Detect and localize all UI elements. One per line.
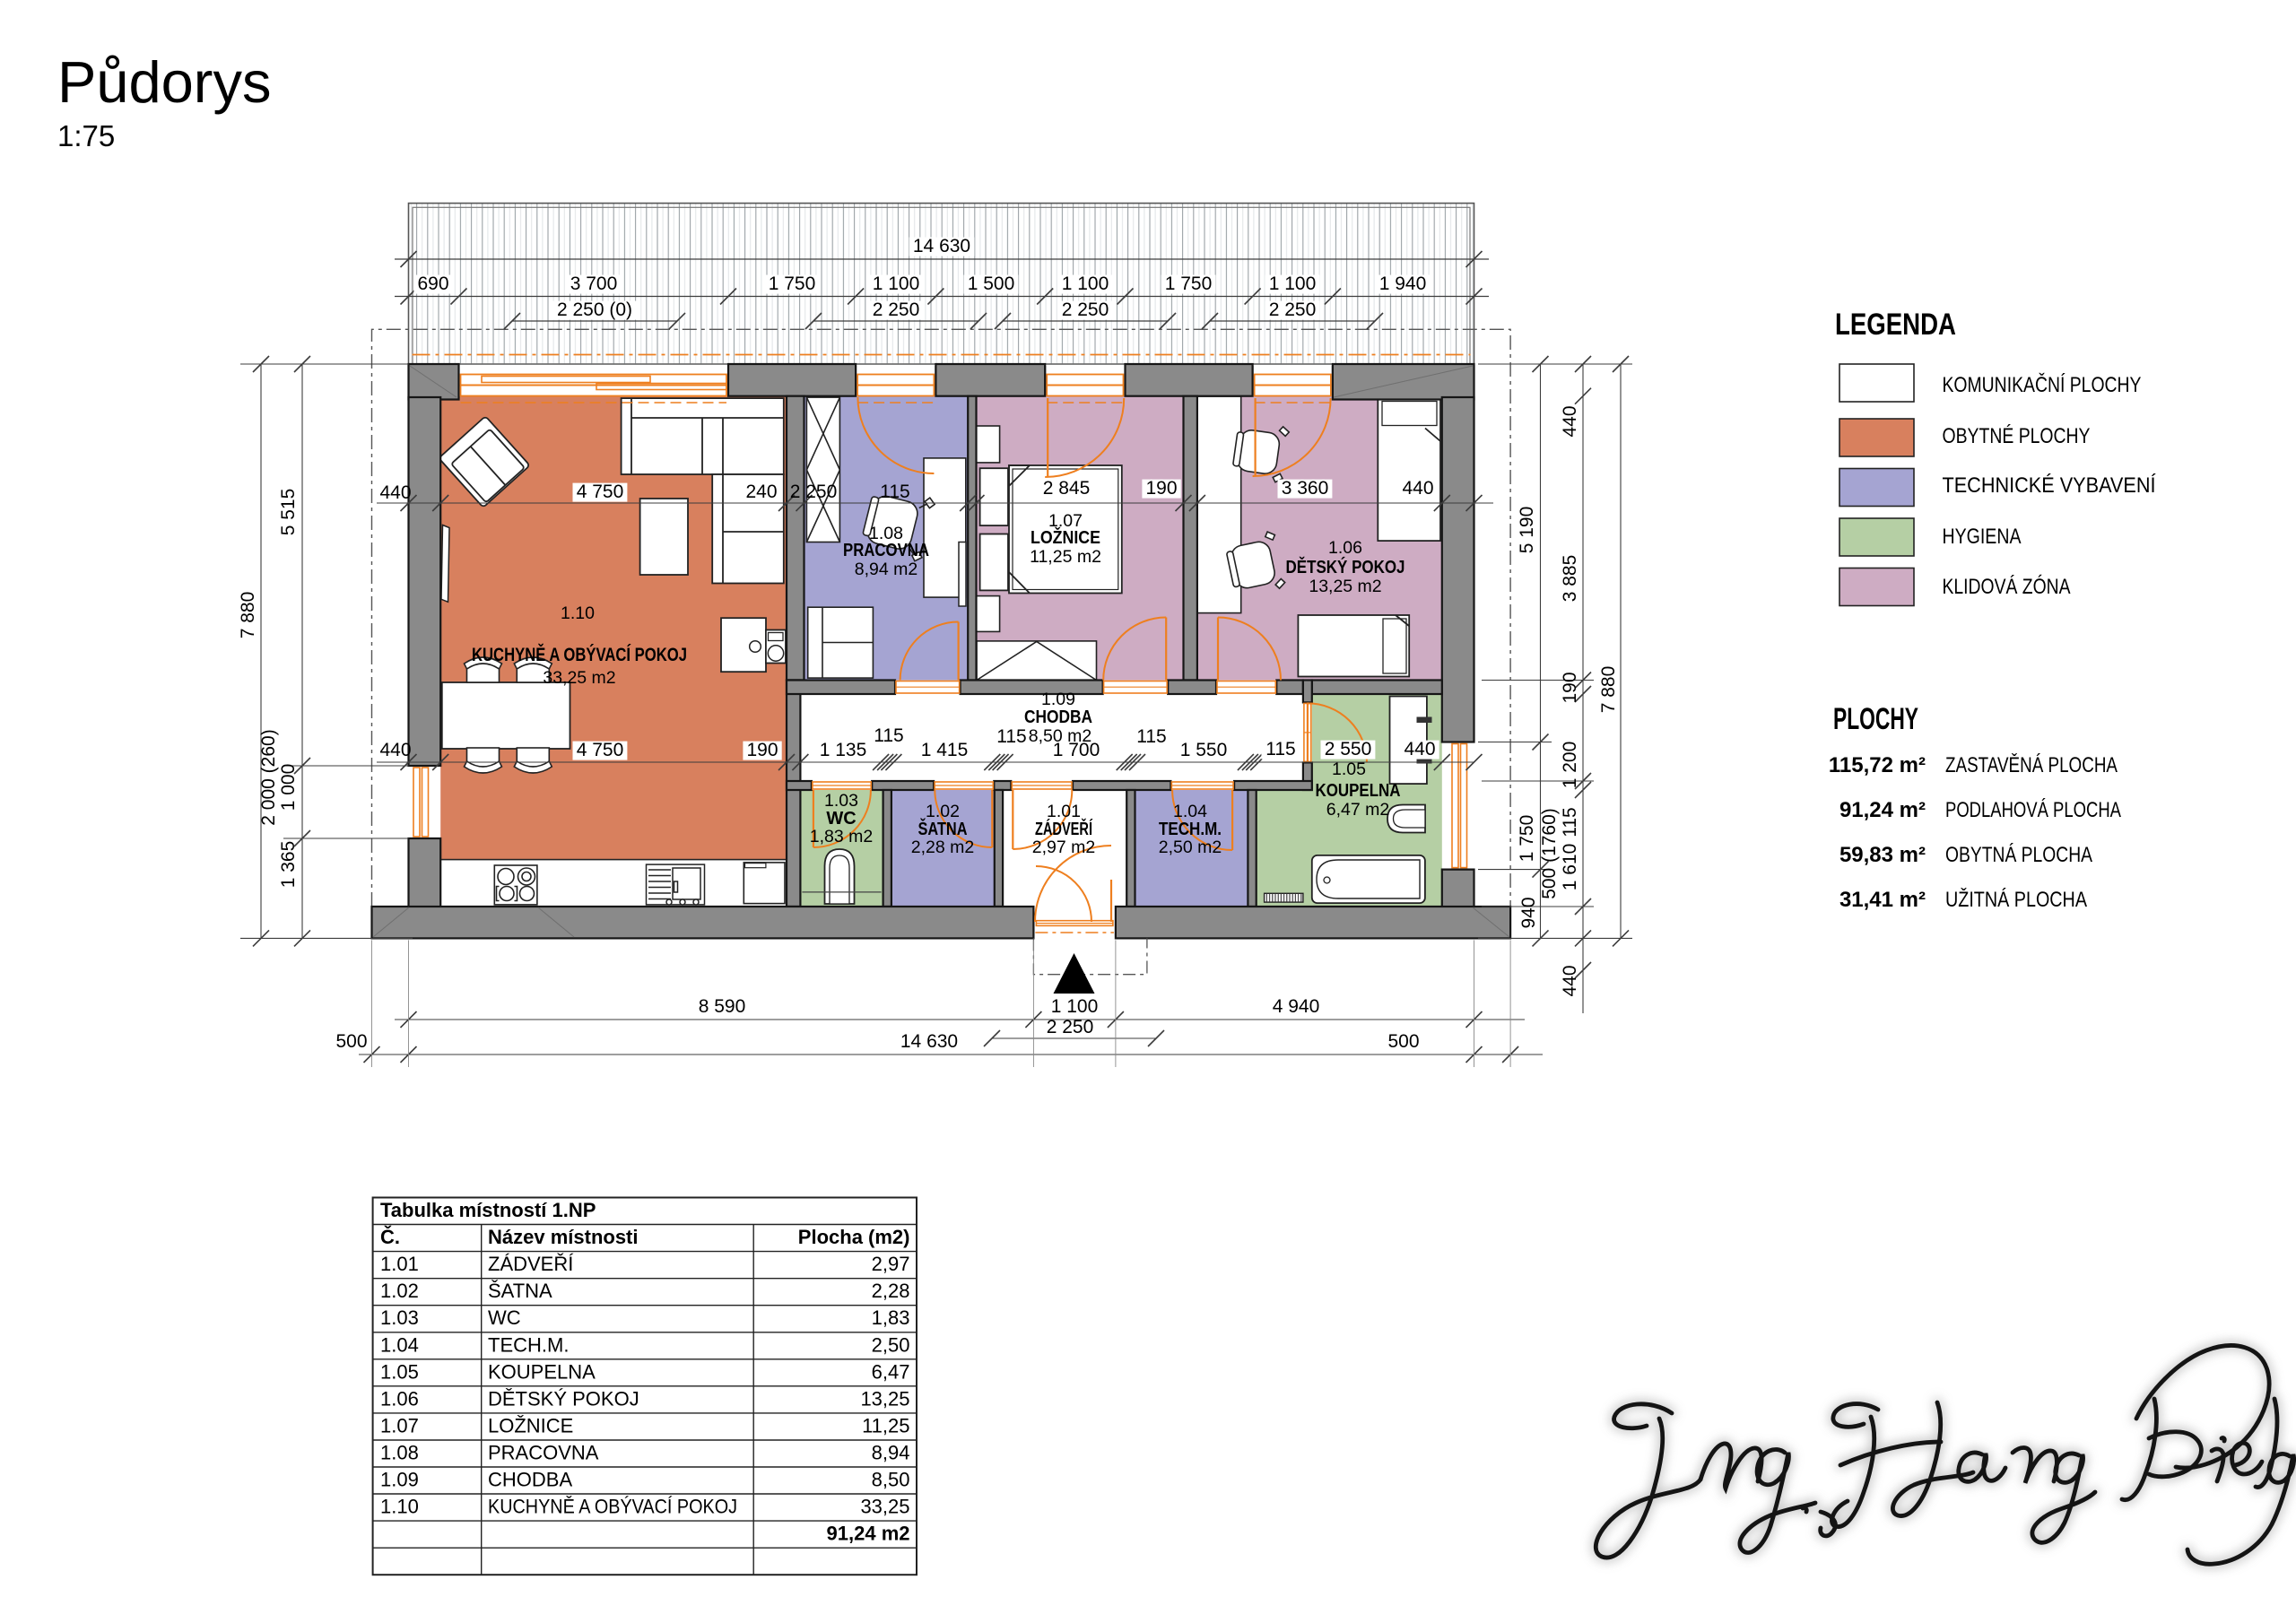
svg-text:14 630: 14 630 xyxy=(913,236,970,256)
svg-text:ZÁDVEŘÍ: ZÁDVEŘÍ xyxy=(488,1253,574,1275)
svg-text:CHODBA: CHODBA xyxy=(1024,707,1092,727)
svg-text:2 550: 2 550 xyxy=(1325,739,1372,759)
svg-text:PODLAHOVÁ PLOCHA: PODLAHOVÁ PLOCHA xyxy=(1945,798,2121,822)
svg-text:KOUPELNA: KOUPELNA xyxy=(488,1360,596,1383)
svg-text:1 000: 1 000 xyxy=(278,764,299,811)
svg-text:Půdorys: Půdorys xyxy=(57,49,271,115)
svg-text:2,97: 2,97 xyxy=(872,1253,910,1275)
svg-text:240: 240 xyxy=(745,482,777,502)
svg-text:LOŽNICE: LOŽNICE xyxy=(488,1415,573,1437)
svg-text:2 250: 2 250 xyxy=(1047,1017,1094,1037)
svg-text:ŠATNA: ŠATNA xyxy=(488,1280,552,1302)
svg-text:Tabulka místností 1.NP: Tabulka místností 1.NP xyxy=(380,1199,596,1221)
svg-text:3 360: 3 360 xyxy=(1282,478,1329,499)
svg-text:TECH.M.: TECH.M. xyxy=(488,1333,569,1356)
svg-text:91,24 m²: 91,24 m² xyxy=(1839,798,1926,822)
svg-text:TECH.M.: TECH.M. xyxy=(1159,820,1222,839)
svg-text:KUCHYNĚ A OBÝVACÍ POKOJ: KUCHYNĚ A OBÝVACÍ POKOJ xyxy=(488,1496,737,1518)
svg-text:115: 115 xyxy=(1265,739,1295,759)
svg-text:DĚTSKÝ POKOJ: DĚTSKÝ POKOJ xyxy=(488,1387,639,1410)
svg-text:KOUPELNA: KOUPELNA xyxy=(1316,781,1401,801)
svg-text:1 415: 1 415 xyxy=(921,740,969,760)
svg-text:8,50: 8,50 xyxy=(872,1469,910,1491)
svg-text:4 750: 4 750 xyxy=(577,482,624,502)
svg-text:1.03: 1.03 xyxy=(380,1306,419,1329)
svg-text:LOŽNICE: LOŽNICE xyxy=(1031,526,1100,548)
svg-text:7 880: 7 880 xyxy=(238,592,258,639)
svg-text:14 630: 14 630 xyxy=(900,1031,958,1052)
svg-text:31,41 m²: 31,41 m² xyxy=(1839,888,1926,912)
svg-text:440: 440 xyxy=(1560,405,1580,437)
svg-text:940: 940 xyxy=(1518,897,1539,928)
svg-text:11,25: 11,25 xyxy=(862,1415,909,1437)
svg-text:3 885: 3 885 xyxy=(1560,555,1580,603)
svg-text:1:75: 1:75 xyxy=(57,119,115,152)
svg-text:1 500: 1 500 xyxy=(968,273,1015,294)
svg-text:1.04: 1.04 xyxy=(380,1333,419,1356)
svg-text:1.09: 1.09 xyxy=(380,1469,419,1491)
svg-text:500: 500 xyxy=(1387,1031,1419,1052)
svg-text:2 250: 2 250 xyxy=(873,299,920,320)
svg-text:Název místnosti: Název místnosti xyxy=(488,1226,639,1248)
svg-text:ŠATNA: ŠATNA xyxy=(918,818,968,839)
svg-text:4 940: 4 940 xyxy=(1273,996,1320,1017)
svg-text:1 100: 1 100 xyxy=(1269,273,1317,294)
svg-text:KLIDOVÁ ZÓNA: KLIDOVÁ ZÓNA xyxy=(1943,575,2071,599)
svg-text:PRACOVNA: PRACOVNA xyxy=(488,1442,599,1464)
svg-text:CHODBA: CHODBA xyxy=(488,1469,572,1491)
svg-text:1 940: 1 940 xyxy=(1379,273,1427,294)
svg-text:690: 690 xyxy=(417,273,448,294)
svg-text:LEGENDA: LEGENDA xyxy=(1835,308,1956,342)
svg-text:190: 190 xyxy=(746,740,778,760)
svg-text:440: 440 xyxy=(379,740,411,760)
svg-text:1.02: 1.02 xyxy=(926,802,960,821)
svg-text:2 000 (260): 2 000 (260) xyxy=(258,729,279,825)
svg-text:115,72 m²: 115,72 m² xyxy=(1829,753,1926,777)
svg-text:WC: WC xyxy=(488,1306,521,1329)
svg-text:1.01: 1.01 xyxy=(380,1253,419,1275)
svg-text:500: 500 xyxy=(335,1031,367,1052)
svg-text:115: 115 xyxy=(1560,807,1580,837)
svg-text:8,50 m2: 8,50 m2 xyxy=(1029,726,1091,746)
svg-text:1.05: 1.05 xyxy=(1332,759,1366,779)
svg-text:2,28 m2: 2,28 m2 xyxy=(911,838,974,857)
svg-text:8 590: 8 590 xyxy=(699,996,746,1017)
svg-text:13,25: 13,25 xyxy=(860,1387,909,1410)
svg-text:5 190: 5 190 xyxy=(1517,507,1537,554)
svg-text:11,25 m2: 11,25 m2 xyxy=(1030,547,1101,567)
svg-text:1.06: 1.06 xyxy=(1328,538,1362,558)
svg-text:1.08: 1.08 xyxy=(380,1442,419,1464)
svg-text:TECHNICKÉ VYBAVENÍ: TECHNICKÉ VYBAVENÍ xyxy=(1943,473,2156,498)
svg-text:115: 115 xyxy=(1136,726,1166,747)
svg-text:OBYTNÉ PLOCHY: OBYTNÉ PLOCHY xyxy=(1943,424,2091,448)
svg-text:ZÁDVEŘÍ: ZÁDVEŘÍ xyxy=(1035,818,1092,839)
svg-text:2 250: 2 250 xyxy=(1269,299,1317,320)
svg-text:1,83 m2: 1,83 m2 xyxy=(810,827,873,846)
svg-text:6,47 m2: 6,47 m2 xyxy=(1326,800,1389,820)
svg-text:Plocha (m2): Plocha (m2) xyxy=(798,1226,910,1248)
svg-text:1 100: 1 100 xyxy=(1062,273,1109,294)
svg-text:1.04: 1.04 xyxy=(1173,802,1207,821)
svg-text:1 750: 1 750 xyxy=(769,273,816,294)
svg-text:1,83: 1,83 xyxy=(872,1306,910,1329)
svg-text:2,97 m2: 2,97 m2 xyxy=(1032,838,1095,857)
svg-text:UŽITNÁ PLOCHA: UŽITNÁ PLOCHA xyxy=(1945,888,2087,912)
svg-text:2 250: 2 250 xyxy=(790,482,838,502)
svg-text:115: 115 xyxy=(996,726,1026,747)
svg-text:33,25 m2: 33,25 m2 xyxy=(543,668,615,688)
svg-text:2,50: 2,50 xyxy=(872,1333,910,1356)
svg-text:HYGIENA: HYGIENA xyxy=(1943,525,2022,549)
svg-text:1.06: 1.06 xyxy=(380,1387,419,1410)
svg-text:500 (1760): 500 (1760) xyxy=(1539,808,1560,899)
svg-text:PLOCHY: PLOCHY xyxy=(1833,702,1918,736)
svg-text:440: 440 xyxy=(1402,478,1433,499)
svg-text:1 365: 1 365 xyxy=(278,841,299,889)
svg-text:115: 115 xyxy=(880,482,909,502)
svg-text:5 515: 5 515 xyxy=(278,489,299,536)
svg-text:4 750: 4 750 xyxy=(577,740,624,760)
svg-text:1.02: 1.02 xyxy=(380,1280,419,1302)
svg-text:7 880: 7 880 xyxy=(1598,666,1619,714)
svg-text:190: 190 xyxy=(1145,478,1177,499)
svg-text:1.10: 1.10 xyxy=(561,603,595,623)
svg-text:1 100: 1 100 xyxy=(873,273,920,294)
svg-text:440: 440 xyxy=(1560,965,1580,996)
svg-text:DĚTSKÝ POKOJ: DĚTSKÝ POKOJ xyxy=(1286,556,1405,577)
svg-text:1.07: 1.07 xyxy=(380,1415,419,1437)
svg-text:440: 440 xyxy=(379,482,411,503)
svg-text:2 250 (0): 2 250 (0) xyxy=(557,299,632,320)
svg-text:WC: WC xyxy=(826,809,856,829)
svg-text:1.05: 1.05 xyxy=(380,1360,419,1383)
svg-text:1.09: 1.09 xyxy=(1041,690,1075,709)
svg-text:1.01: 1.01 xyxy=(1047,802,1081,821)
svg-text:1 135: 1 135 xyxy=(820,740,867,760)
svg-text:33,25: 33,25 xyxy=(860,1496,909,1518)
svg-text:KOMUNIKAČNÍ PLOCHY: KOMUNIKAČNÍ PLOCHY xyxy=(1943,372,2142,397)
svg-text:1.10: 1.10 xyxy=(380,1496,419,1518)
svg-text:2 250: 2 250 xyxy=(1062,299,1109,320)
svg-text:KUCHYNĚ A OBÝVACÍ POKOJ: KUCHYNĚ A OBÝVACÍ POKOJ xyxy=(472,644,687,665)
svg-text:8,94 m2: 8,94 m2 xyxy=(855,560,918,579)
svg-text:PRACOVNA: PRACOVNA xyxy=(843,541,929,560)
svg-text:3 700: 3 700 xyxy=(570,273,618,294)
svg-text:1 200: 1 200 xyxy=(1560,742,1580,789)
svg-text:2 845: 2 845 xyxy=(1043,478,1091,499)
svg-text:ZASTAVĚNÁ PLOCHA: ZASTAVĚNÁ PLOCHA xyxy=(1945,753,2118,777)
svg-text:59,83 m²: 59,83 m² xyxy=(1839,843,1926,867)
svg-text:440: 440 xyxy=(1404,739,1435,759)
svg-text:Č.: Č. xyxy=(380,1226,400,1248)
svg-text:190: 190 xyxy=(1560,672,1580,703)
svg-text:1 750: 1 750 xyxy=(1165,273,1213,294)
svg-text:1 610: 1 610 xyxy=(1560,844,1580,891)
svg-text:8,94: 8,94 xyxy=(872,1442,910,1464)
svg-text:2,28: 2,28 xyxy=(872,1280,910,1302)
svg-text:OBYTNÁ PLOCHA: OBYTNÁ PLOCHA xyxy=(1945,843,2092,867)
svg-text:6,47: 6,47 xyxy=(872,1360,910,1383)
svg-text:1 750: 1 750 xyxy=(1517,815,1537,863)
svg-text:2,50 m2: 2,50 m2 xyxy=(1159,838,1222,857)
svg-text:13,25 m2: 13,25 m2 xyxy=(1309,577,1381,596)
svg-text:115: 115 xyxy=(874,725,903,746)
svg-text:1 100: 1 100 xyxy=(1051,996,1099,1017)
svg-text:1 550: 1 550 xyxy=(1180,740,1228,760)
svg-text:1.03: 1.03 xyxy=(824,791,858,811)
svg-text:91,24 m2: 91,24 m2 xyxy=(827,1523,910,1545)
